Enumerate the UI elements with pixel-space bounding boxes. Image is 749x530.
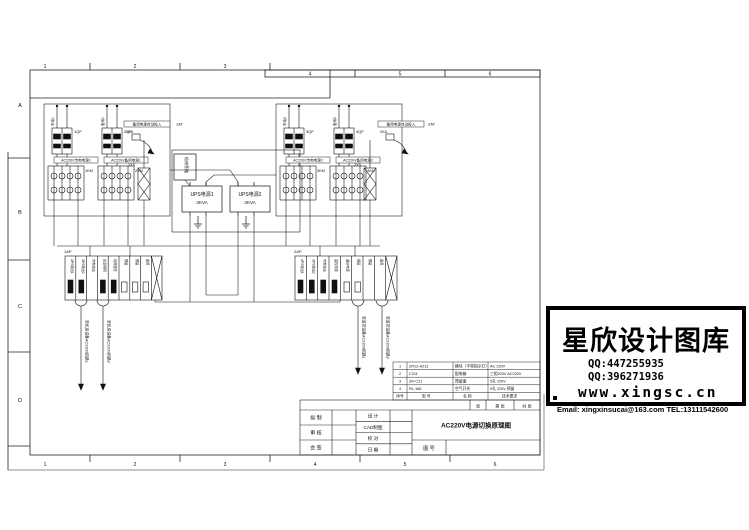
contactor-tag: 3KM	[317, 169, 325, 173]
wire-tag: AC220V市电电源1	[61, 158, 91, 163]
ups-section-outline	[172, 150, 300, 232]
dist-row-2-texts: 2AP UPS输出1 UPS输出2 市电输出 监控电源 通信电源 预留 预留 备…	[294, 249, 391, 359]
zone-number: 5	[404, 462, 407, 468]
dist-row-2	[295, 256, 397, 374]
feeder-vlabel: 市电1	[50, 117, 55, 126]
contactor-tag: 1KM	[85, 169, 93, 173]
cell-label: UPS输出2	[311, 259, 316, 274]
bom-cell: 三相220V AC220V	[490, 371, 522, 376]
watermark-qq2: QQ:396271936	[588, 371, 742, 384]
feeder-labels: 1QF 2QF 3QF 4QF 市电1 备用1 市电2 备用2	[50, 117, 364, 134]
cell-label: 预留	[124, 259, 129, 265]
relay-tags: 1KA 2KA	[126, 130, 388, 134]
watermark-contact: Email: xingxinsucai@163.com TEL:13111542…	[557, 405, 742, 414]
feeder-vlabel: 市电2	[282, 117, 287, 126]
cell-label: 通信电源	[345, 259, 350, 273]
wire-tag: AC220V备用电源1	[111, 158, 141, 163]
tb-strip-cell: 张	[476, 403, 481, 410]
contactor-1	[48, 166, 84, 200]
zone-number: 2	[134, 462, 137, 468]
socket-tag: 2XS	[354, 163, 362, 167]
zone-letter: A	[18, 103, 22, 109]
relay-tag: 1KA	[126, 130, 134, 134]
cell-label: UPS输出2	[81, 259, 86, 274]
watermark-site: www.xingsc.cn	[578, 385, 742, 401]
ups1-box	[182, 186, 222, 212]
breaker-tag: 4QF	[356, 129, 364, 134]
ats-tag: 2AT	[428, 122, 436, 127]
tb-label: 拟 制	[310, 415, 321, 422]
cell-label: 监控电源	[334, 259, 339, 273]
zone-number: 6	[494, 462, 497, 468]
bom-cell: 3	[399, 380, 401, 384]
dist-row-1-texts: 1AP UPS输出1 UPS输出2 市电输出 应急照明 检修插座 预留 预留 备…	[64, 249, 151, 363]
ground-symbol	[242, 216, 250, 228]
contactor-3	[280, 166, 316, 200]
relay-tag: 2KA	[380, 130, 388, 134]
bom-cell: 预留盒	[455, 379, 467, 384]
zone-number: 1	[44, 462, 47, 468]
bom-cell: 4	[399, 387, 401, 391]
zone-numbers-top: 1 2 3 4 5 6	[44, 64, 492, 78]
ups1-name: UPS电源1	[190, 191, 213, 198]
contactor-4	[330, 166, 366, 200]
tb-label: 图 号	[423, 446, 434, 452]
zone-letter: C	[18, 304, 22, 310]
contactor-2	[98, 166, 134, 200]
cell-label: UPS输出1	[300, 259, 305, 274]
zone-number: 5	[399, 72, 402, 78]
section-outlines	[44, 104, 402, 232]
drawing-title: AC220V电源切换原理图	[441, 421, 512, 430]
cell-label: 预留	[135, 259, 140, 265]
bom-cell: ZR-C21	[409, 380, 422, 384]
watermark-box: 星欣设计图库 QQ:447255935 QQ:396271936 www.xin…	[546, 306, 746, 406]
bom-cell: 2	[399, 372, 401, 376]
bom-texts: 1 ZR12-A212 模块（不带指示灯） AC 220V 2 C211 配电箱…	[396, 363, 522, 398]
wire-tag-boxes	[54, 121, 424, 163]
cell-label: 备用	[146, 259, 151, 265]
tb-label: 校 对	[368, 435, 379, 442]
ground-symbol	[194, 216, 202, 228]
tb-strip-cell: 共 张	[522, 403, 532, 410]
contactor-tags: 1KM 2KM 3KM 4KM	[85, 169, 375, 173]
out-circuit-label: 至机房设备AC220V回路1	[85, 320, 90, 363]
bom-header-cell: 型 号	[422, 394, 431, 399]
bom-cell: 5孔 220V	[490, 379, 506, 384]
breaker-tag: 3QF	[306, 129, 314, 134]
dist-row-1	[65, 256, 162, 390]
tb-label: 审 核	[310, 430, 321, 437]
out-circuit-label: 至监控设备AC220V回路2	[386, 316, 391, 359]
panel-tag: 1AP	[64, 249, 72, 254]
feeder-vlabel: 备用1	[100, 117, 105, 126]
cell-label: 预留	[357, 259, 362, 265]
ats-label: 备用电源自动投入	[387, 122, 416, 127]
breaker-tag: 1QF	[74, 129, 82, 134]
tb-strip-cell: 第 张	[495, 403, 505, 410]
zone-number: 3	[224, 64, 227, 70]
zone-number: 1	[44, 64, 47, 70]
ups1-rating: 3KVA	[196, 200, 208, 205]
feeder-vlabel: 备用2	[332, 117, 337, 126]
out-circuit-label: 至机房设备AC220V回路2	[107, 320, 112, 363]
bom-cell: C211	[409, 372, 418, 376]
bom-header-cell: 技术要求	[502, 394, 517, 399]
watermark-qq1: QQ:447255935	[588, 358, 742, 371]
zone-letters-left: A B C D	[18, 103, 22, 404]
ups2-rating: 3KVA	[244, 200, 256, 205]
bom-cell: 空气开关	[455, 386, 470, 391]
cell-label: 市电输出	[92, 259, 97, 272]
zone-letter: D	[18, 398, 22, 404]
socket-tags: 1XS 2XS	[128, 163, 362, 167]
ups2-name: UPS电源2	[238, 191, 261, 198]
cell-label: UPS输出1	[70, 259, 75, 274]
zone-number: 6	[489, 72, 492, 78]
ups2-box	[230, 186, 270, 212]
tb-label: 会 签	[310, 445, 321, 452]
ats-tag: 1AT	[176, 122, 184, 127]
tb-label: 设 计	[368, 413, 379, 420]
panel-tag: 2AP	[294, 249, 302, 254]
wire-tag: AC220V市电电源2	[293, 158, 323, 163]
bom-cell: RL-186	[409, 387, 421, 391]
watermark-brand: 星欣设计图库	[550, 319, 742, 358]
tb-label: CAD制图	[364, 424, 383, 431]
cell-label: 检修插座	[113, 259, 118, 273]
bom-cell: AC 220V	[490, 364, 506, 368]
bom-cell: 1	[399, 364, 401, 368]
zone-number: 4	[314, 462, 317, 468]
out-circuit-label: 至监控设备AC220V回路1	[362, 316, 367, 359]
zone-number: 4	[309, 72, 312, 78]
cell-label: 备用	[379, 259, 384, 265]
zone-letter: B	[18, 210, 22, 216]
bom-cell: 模块（不带指示灯）	[455, 363, 489, 368]
schematic-sheet: 1 2 3 4 5 6 1 2 3 4 5 6 A B C D	[0, 0, 749, 530]
zone-numbers-bottom: 1 2 3 4 5 6	[44, 462, 497, 468]
cell-label: 市电输出	[323, 259, 328, 272]
bypass-label: 检修旁路	[184, 157, 190, 173]
wire-tag: AC220V备用电源2	[343, 158, 373, 163]
bom-cell: 5孔 220V 预留	[490, 386, 515, 391]
cell-label: 应急照明	[102, 259, 107, 272]
zone-number: 2	[134, 64, 137, 70]
bom-header-cell: 序号	[396, 394, 404, 399]
tb-label: 日 期	[368, 447, 379, 453]
bom-cell: ZR12-A212	[409, 364, 428, 368]
bom-cell: 配电箱	[455, 371, 467, 376]
watermark-corner-dot	[553, 396, 557, 400]
cad-drawing-screenshot: 1 2 3 4 5 6 1 2 3 4 5 6 A B C D	[0, 0, 749, 530]
socket-tag: 1XS	[128, 163, 136, 167]
zone-number: 3	[224, 462, 227, 468]
cell-label: 预留	[368, 259, 373, 265]
ats-label: 备用电源自动投入	[133, 122, 162, 127]
bom-header-cell: 名 称	[463, 394, 472, 399]
